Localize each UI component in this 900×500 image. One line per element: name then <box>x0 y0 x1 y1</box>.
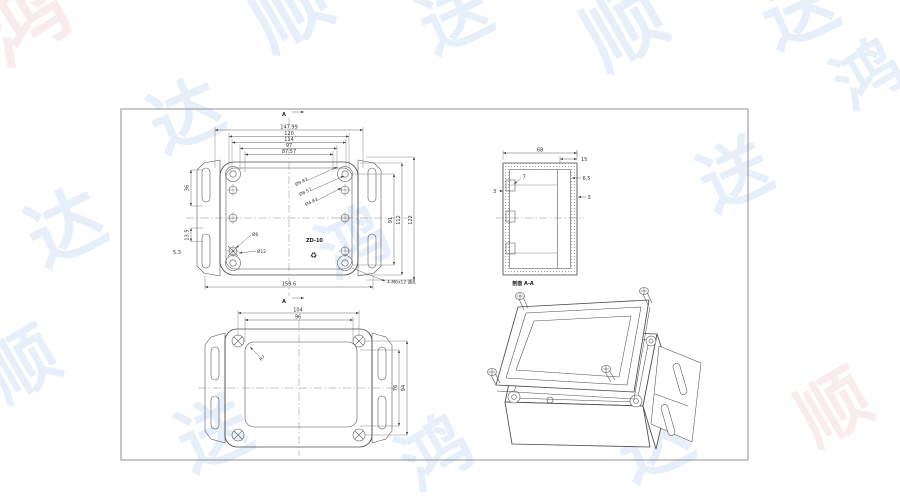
dim-label: 7 <box>523 175 526 181</box>
dim-label: 122 <box>408 215 414 225</box>
fillet-leader: R7 <box>250 347 267 362</box>
screenshot-root: 鸿 达 顺 送 顺 送 鸿 达 顺 送 鸿 达 顺 送 鸿 <box>0 0 900 500</box>
recycle-icon: ♻ <box>310 251 317 260</box>
leader-label: 4-M6x12 通孔 <box>387 279 417 286</box>
dim-label: 68 <box>537 147 543 153</box>
leader-label: Ø12 <box>257 248 266 255</box>
dim-label: 76 <box>393 385 399 391</box>
bracket-slot <box>368 234 376 268</box>
leader-label: Ø4.83 <box>304 196 319 208</box>
dim-label: 3 <box>588 195 591 201</box>
left-dimensions: 36 13.5 5.3 <box>173 170 203 256</box>
section-inner <box>510 170 571 269</box>
dim-label: 104 <box>293 307 303 313</box>
dim-label: 36 <box>185 185 191 191</box>
section-view: 68 15 6.5 3 7 3 剖面 A-A <box>493 147 591 287</box>
dim-label: 13.5 <box>185 229 191 240</box>
dim-label: 159.6 <box>282 281 296 287</box>
part-marking: ZD-10 <box>306 238 323 244</box>
dim-label: 3 <box>493 189 496 195</box>
bracket-slot <box>378 396 386 429</box>
bracket-slot <box>211 347 219 380</box>
right-dimensions: 91 112 122 <box>353 157 414 280</box>
leader-label: Ø6 <box>252 231 258 238</box>
hole-leaders: Ø6 Ø12 <box>236 231 266 255</box>
mounting-holes-note: 4-M6x12 通孔 <box>352 268 417 286</box>
leader-label: Ø9.83 <box>294 176 309 188</box>
bracket-slot <box>368 168 376 202</box>
dim-label: 6.5 <box>583 176 591 182</box>
leader-label: R7 <box>258 354 267 363</box>
dim-label: 5.3 <box>173 250 181 256</box>
iso-lid <box>488 288 653 400</box>
top-dimensions: 104 96 <box>238 307 359 342</box>
dim-label: 96 <box>295 314 301 320</box>
section-caption: 剖面 A-A <box>512 280 534 287</box>
rim-boss <box>630 395 642 407</box>
engineering-drawing: A A 147.99 120 114 97 87.57 <box>0 0 900 500</box>
bracket-slot <box>211 396 219 429</box>
bracket-slot <box>202 168 210 202</box>
bracket-slot <box>378 347 386 380</box>
dim-label: 91 <box>388 217 394 223</box>
iso-view <box>488 288 702 450</box>
section-letter: A <box>282 112 286 118</box>
dim-label: 112 <box>396 215 402 225</box>
leader-label: Ø8.57 <box>298 186 313 198</box>
dim-label: 87.57 <box>282 149 296 155</box>
section-letter: A <box>282 299 286 305</box>
top-view: A A 147.99 120 114 97 87.57 <box>173 112 417 305</box>
rim-boss <box>646 336 656 346</box>
corner-boss-leaders: Ø9.83 Ø8.57 Ø4.83 <box>294 167 344 208</box>
dim-label: 15 <box>581 157 587 163</box>
box-front-face <box>505 402 650 447</box>
rim-boss <box>508 391 520 403</box>
bracket-slot <box>202 234 210 268</box>
dim-label: 94 <box>401 385 407 391</box>
dim-label: 147.99 <box>280 124 298 130</box>
section-marker-top: A <box>282 112 304 118</box>
bottom-view: 104 96 76 94 R7 <box>198 307 407 456</box>
base-recess <box>245 342 357 427</box>
section-marker-bottom: A <box>282 298 304 305</box>
lid-panel <box>516 316 631 377</box>
